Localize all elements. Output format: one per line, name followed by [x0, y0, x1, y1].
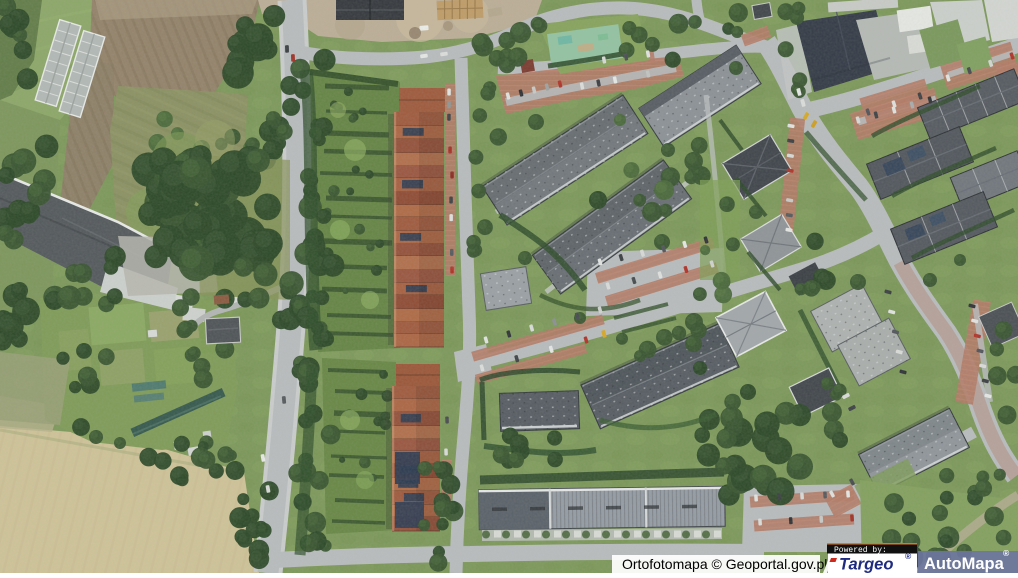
svg-text:AutoMapa: AutoMapa: [924, 555, 1005, 573]
svg-text:Ortofotomapa © Geoportal.gov.p: Ortofotomapa © Geoportal.gov.pl: [622, 556, 827, 572]
svg-text:Targeo: Targeo: [839, 556, 893, 574]
svg-text:®: ®: [1003, 548, 1010, 558]
svg-text:®: ®: [905, 551, 912, 561]
